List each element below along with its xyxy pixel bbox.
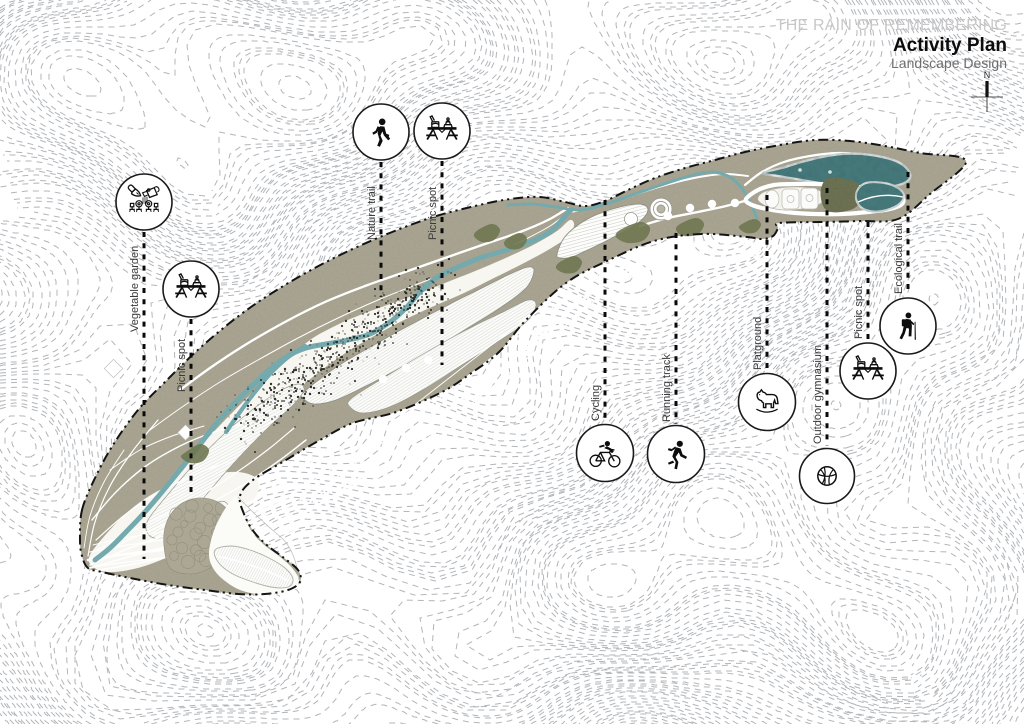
svg-text:Vegetable garden: Vegetable garden: [129, 246, 141, 332]
svg-text:Landscape Design: Landscape Design: [891, 55, 1007, 71]
svg-text:Activity Plan: Activity Plan: [893, 35, 1007, 56]
svg-text:Picnic spot: Picnic spot: [427, 187, 439, 240]
svg-text:Cycling: Cycling: [590, 385, 602, 421]
svg-text:Outdoor gymnasium: Outdoor gymnasium: [812, 345, 824, 444]
svg-text:Picnic spot: Picnic spot: [853, 286, 865, 339]
svg-text:THE RAIN OF REMEMBERING: THE RAIN OF REMEMBERING: [776, 17, 1007, 34]
svg-text:Picnic spot: Picnic spot: [176, 339, 188, 392]
svg-text:Ecological trail: Ecological trail: [893, 223, 905, 294]
svg-text:Nature trail: Nature trail: [366, 186, 378, 240]
svg-text:Running track: Running track: [661, 354, 673, 422]
svg-text:Platground: Platground: [752, 317, 764, 370]
svg-text:N: N: [984, 70, 991, 80]
